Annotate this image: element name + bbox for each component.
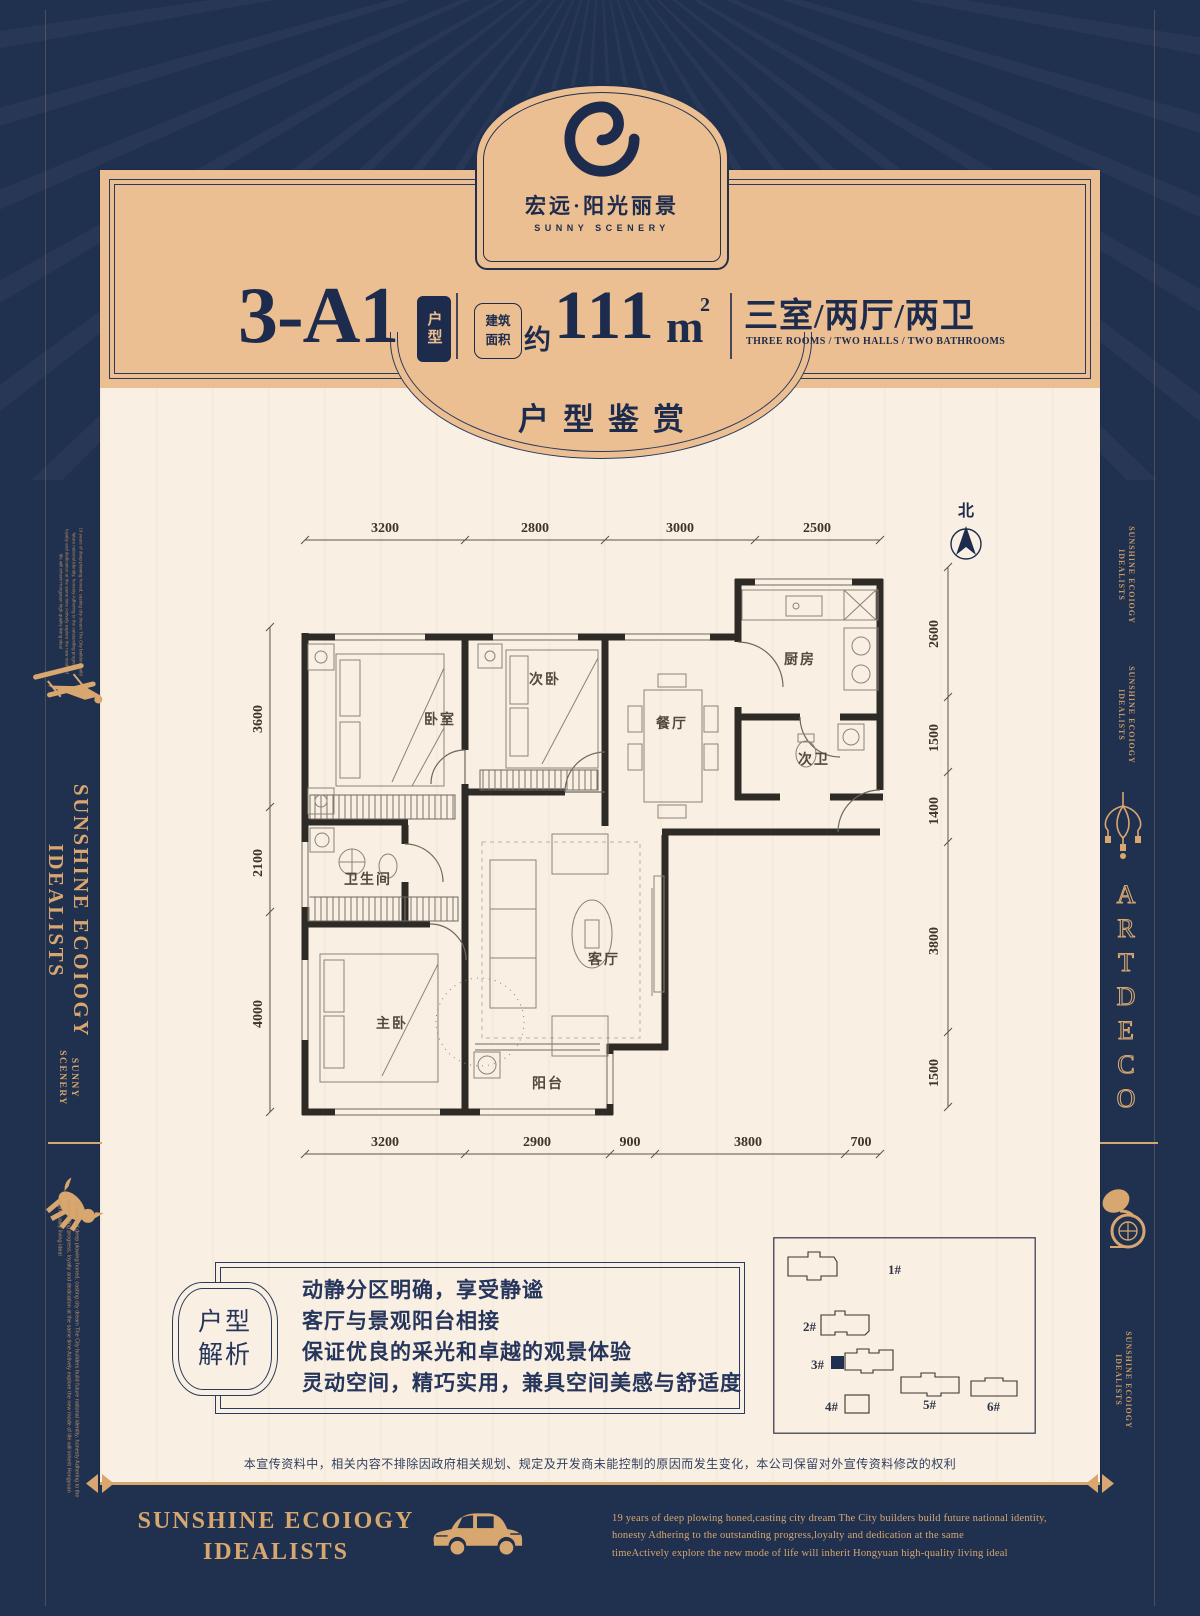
footer-description: 19 years of deep plowing honed,casting c… <box>612 1510 1117 1562</box>
chandelier-icon <box>1098 790 1148 866</box>
area-superscript: 2 <box>700 294 710 317</box>
footer-slogan-line1: SUNSHINE ECOIOGY <box>128 1506 424 1537</box>
right-rail-small-title-1: SUNSHINE ECOIOGY IDEALISTS <box>1116 505 1136 645</box>
room-label-bedroom: 卧室 <box>424 711 456 728</box>
disclaimer: 本宣传资料中，相关内容不排除因政府相关规划、规定及开发商未能控制的原因而发生变化… <box>100 1455 1100 1472</box>
svg-text:3800: 3800 <box>734 1135 762 1150</box>
analysis-line-1: 动静分区明确，享受静谧 <box>302 1275 742 1306</box>
svg-text:北: 北 <box>958 502 974 520</box>
brand-logo-icon <box>563 99 641 181</box>
svg-text:700: 700 <box>851 1135 872 1150</box>
footer-border-line <box>100 1482 1100 1485</box>
analysis-badge: 户型 解析 <box>172 1282 278 1396</box>
room-label-kitchen: 厨房 <box>784 651 816 668</box>
poster: 户型鉴赏 宏远·阳光丽景 SUNNY SCENERY 3-A1 户型 建筑 面积… <box>0 0 1200 1616</box>
left-rail-vertical-title: SUNSHINE ECOIOGY IDEALISTS <box>43 741 93 1081</box>
area-label-line2: 面积 <box>485 331 510 350</box>
windows <box>302 579 852 1115</box>
layout-cn: 三室/两厅/两卫 <box>744 288 975 337</box>
building-5 <box>901 1373 959 1396</box>
unit-code: 3-A1 <box>238 276 398 356</box>
left-rail-bottom-micro-text: 19 years of deep plowing honed, casting … <box>56 1200 81 1500</box>
svg-text:2500: 2500 <box>803 521 831 536</box>
svg-text:3000: 3000 <box>666 521 694 536</box>
building-3 <box>845 1349 893 1373</box>
analysis-line-2: 客厅与景观阳台相接 <box>302 1306 742 1337</box>
title-divider-1 <box>456 293 458 359</box>
svg-text:2900: 2900 <box>523 1135 551 1150</box>
svg-text:1500: 1500 <box>927 1059 942 1087</box>
footer-desc-line2: honesty Adhering to the outstanding prog… <box>612 1527 1117 1544</box>
svg-text:2100: 2100 <box>251 849 266 877</box>
artdeco-letter-c: C <box>1106 1050 1146 1084</box>
area-number: 111 <box>554 281 656 350</box>
area-label-line1: 建筑 <box>485 312 510 331</box>
building-label-3: 3# <box>811 1357 825 1372</box>
left-rail-divider <box>48 1142 102 1144</box>
analysis-badge-line2: 解析 <box>198 1339 252 1372</box>
title-divider-2 <box>730 293 732 359</box>
building-label-6: 6# <box>987 1399 1001 1414</box>
building-label-5: 5# <box>923 1397 937 1412</box>
north-arrow-icon: 北 <box>951 502 981 559</box>
artdeco-letter-d: D <box>1106 982 1146 1016</box>
building-1 <box>788 1252 837 1280</box>
analysis-panel: 动静分区明确，享受静谧 客厅与景观阳台相接 保证优良的采光和卓越的观景体验 灵动… <box>215 1262 745 1414</box>
svg-text:3200: 3200 <box>371 521 399 536</box>
svg-text:2600: 2600 <box>927 620 942 648</box>
french-horn-icon <box>1096 1185 1154 1263</box>
building-6 <box>971 1378 1017 1396</box>
brand-name-cn: 宏远·阳光丽景 <box>477 190 727 220</box>
right-rail-divider <box>1100 1142 1158 1144</box>
svg-text:1400: 1400 <box>927 797 942 825</box>
right-edge-line <box>1154 10 1155 1606</box>
doors <box>405 642 880 960</box>
artdeco-letter-r: R <box>1106 914 1146 948</box>
section-title: 户型鉴赏 <box>391 394 811 439</box>
svg-text:3200: 3200 <box>371 1135 399 1150</box>
building-4 <box>845 1395 869 1413</box>
svg-text:2800: 2800 <box>521 521 549 536</box>
building-label-2: 2# <box>803 1319 817 1334</box>
room-label-master: 主卧 <box>376 1015 408 1032</box>
footer-desc-line1: 19 years of deep plowing honed,casting c… <box>612 1510 1117 1527</box>
room-label-second-bedroom: 次卧 <box>529 671 561 688</box>
current-unit-marker <box>831 1356 844 1369</box>
right-rail-small-title-2: SUNSHINE ECOIOGY IDEALISTS <box>1116 645 1136 785</box>
siteplan: 1# 2# 3# 4# 5# 6# <box>773 1237 1036 1434</box>
svg-text:3600: 3600 <box>251 705 266 733</box>
room-label-dining: 餐厅 <box>655 715 688 732</box>
svg-text:3800: 3800 <box>927 927 942 955</box>
room-label-bathroom: 卫生间 <box>344 871 392 888</box>
area-approx: 约 <box>524 318 551 357</box>
artdeco-letter-e: E <box>1106 1016 1146 1050</box>
svg-text:1500: 1500 <box>927 724 942 752</box>
brand-crest: 宏远·阳光丽景 SUNNY SCENERY <box>475 84 729 270</box>
right-rail-small-title-3: SUNSHINE ECOIOGY IDEALISTS <box>1113 1305 1133 1455</box>
building-label-1: 1# <box>888 1262 902 1277</box>
vintage-car-icon <box>428 1500 526 1566</box>
room-label-living: 客厅 <box>587 951 620 968</box>
artdeco-letter-a: A <box>1106 880 1146 914</box>
footer-desc-line3: timeActively explore the new mode of lif… <box>612 1545 1117 1562</box>
analysis-line-3: 保证优良的采光和卓越的观景体验 <box>302 1337 742 1368</box>
analysis-line-4: 灵动空间，精巧实用，兼具空间美感与舒适度 <box>302 1368 742 1399</box>
footer-slogan-line2: IDEALISTS <box>128 1537 424 1568</box>
unit-type-tag: 户型 <box>417 296 451 362</box>
brand-name-en: SUNNY SCENERY <box>477 223 727 233</box>
svg-text:900: 900 <box>620 1135 641 1150</box>
room-label-balcony: 阳台 <box>532 1075 564 1092</box>
analysis-badge-line1: 户型 <box>198 1306 252 1339</box>
footer-slogan: SUNSHINE ECOIOGY IDEALISTS <box>128 1506 424 1568</box>
layout-en: THREE ROOMS / TWO HALLS / TWO BATHROOMS <box>746 336 1005 347</box>
building-2 <box>821 1311 869 1335</box>
building-label-4: 4# <box>825 1399 839 1414</box>
bowtie-ornament-left <box>86 1474 114 1493</box>
bowtie-ornament-right <box>1086 1474 1114 1493</box>
left-rail-sub-title: SUNNY SCENERY <box>56 1038 80 1118</box>
floorplan: 3200 2800 3000 2500 3200 2900 900 3800 7… <box>240 492 1010 1182</box>
artdeco-letter-o: O <box>1106 1084 1146 1118</box>
room-label-second-bath: 次卫 <box>798 751 830 768</box>
svg-text:4000: 4000 <box>251 1000 266 1028</box>
area-unit: m <box>666 301 704 353</box>
artdeco-letter-t: T <box>1106 948 1146 982</box>
area-label-box: 建筑 面积 <box>474 303 522 359</box>
